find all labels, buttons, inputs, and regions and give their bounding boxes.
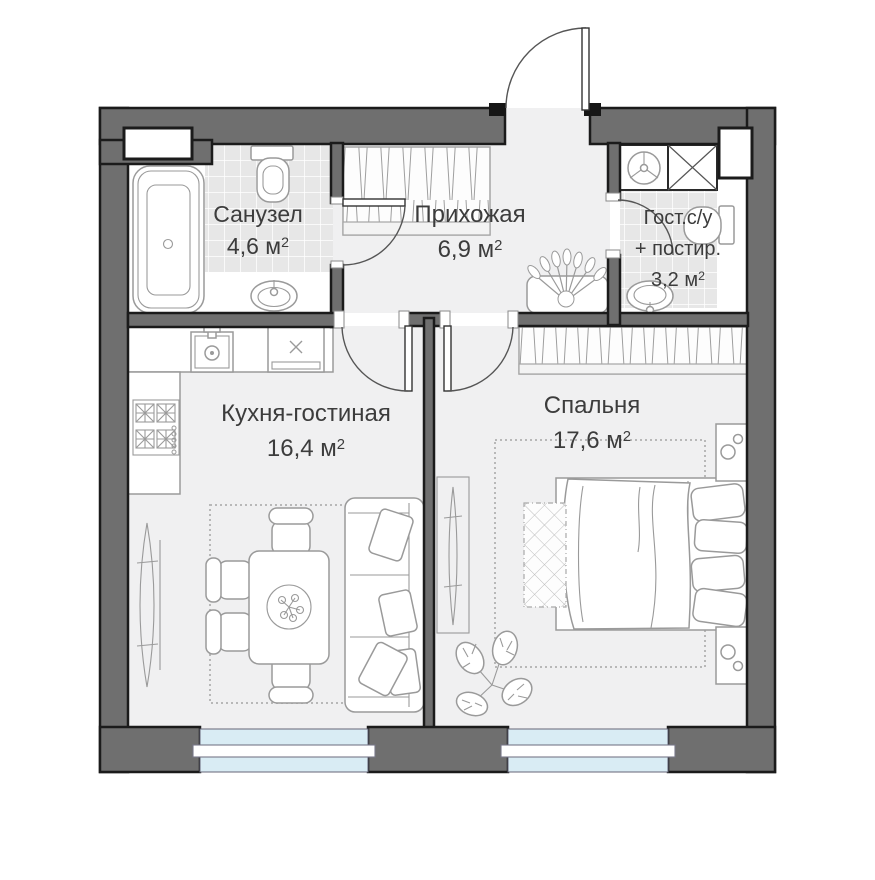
sofa — [345, 498, 424, 712]
bed — [556, 478, 748, 630]
dining-table — [249, 551, 329, 664]
room-name: Прихожая — [414, 197, 525, 232]
room-area: 3,2 м2 — [635, 265, 721, 298]
room-area: 17,6 м2 — [544, 423, 640, 462]
nightstand-bottom — [716, 627, 748, 684]
room-area: 16,4 м2 — [221, 431, 391, 470]
room-label-prihozhaya: Прихожая 6,9 м2 — [414, 197, 525, 271]
floor-plan: Санузел 4,6 м2 Прихожая 6,9 м2 Гост.с/у … — [0, 0, 875, 880]
room-label-sanuzel: Санузел 4,6 м2 — [213, 198, 303, 266]
room-area: 6,9 м2 — [414, 232, 525, 271]
window-kitchen — [193, 729, 375, 772]
window-bedroom — [501, 729, 675, 772]
ventilation-shaft — [668, 145, 717, 190]
room-area: 4,6 м2 — [213, 230, 303, 266]
entry-floor — [505, 108, 590, 145]
toilet — [251, 146, 293, 202]
room-name: Спальня — [544, 388, 640, 423]
bed-bench — [524, 503, 566, 607]
room-name: Санузел — [213, 198, 303, 230]
room-label-gost-su: Гост.с/у + постир. 3,2 м2 — [635, 203, 721, 298]
floor-plan-drawing — [0, 0, 875, 880]
wall-niche-left — [124, 128, 192, 159]
entrance-door — [506, 28, 589, 110]
room-name: Кухня-гостиная — [221, 396, 391, 431]
kitchen-sink — [191, 327, 233, 372]
washing-machine — [620, 145, 668, 190]
room-label-kitchen: Кухня-гостиная 16,4 м2 — [221, 396, 391, 470]
bathroom-sink — [251, 280, 297, 311]
oven — [268, 327, 324, 372]
room-name: Гост.с/у — [635, 203, 721, 234]
wall-niche-right — [719, 128, 752, 178]
room-name2: + постир. — [635, 234, 721, 265]
room-label-bedroom: Спальня 17,6 м2 — [544, 388, 640, 462]
bedroom-wardrobe — [519, 327, 748, 374]
nightstand-top — [716, 424, 748, 481]
